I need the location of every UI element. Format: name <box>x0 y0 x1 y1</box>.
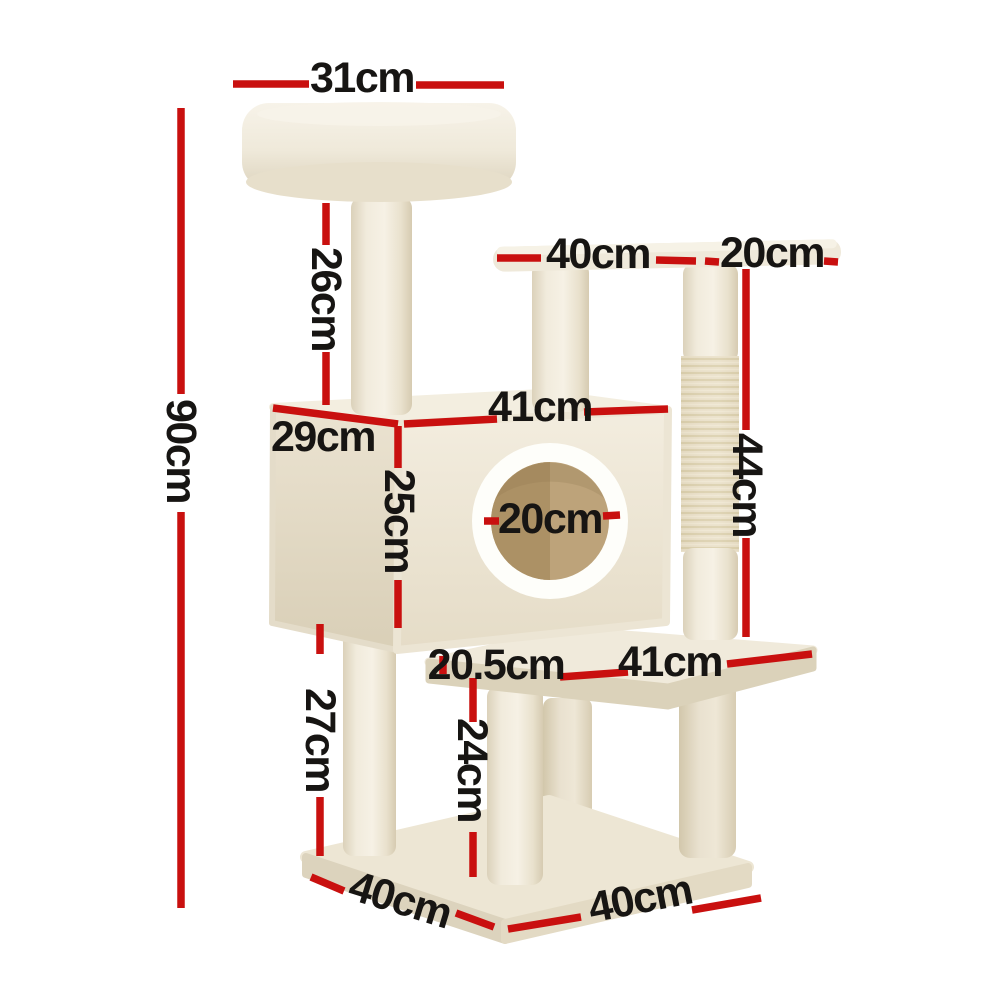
left-post <box>343 627 396 856</box>
dim-label-hole-diameter: 20cm <box>498 495 602 543</box>
dim-condo-width-line-left <box>404 419 497 424</box>
dim-label-lower-platform-inset: 20.5cm <box>428 641 565 689</box>
product-dimension-diagram: 31cm 90cm 26cm 40cm 20cm 41cm 29cm 25cm … <box>0 0 1000 1000</box>
dim-mid-platform-dash-b <box>705 261 719 262</box>
dim-label-lower-platform-length: 41cm <box>618 638 722 686</box>
dim-label-sisal-post-height: 44cm <box>723 433 771 537</box>
dim-label-front-post-height: 24cm <box>448 718 496 822</box>
dim-label-mid-platform-length: 40cm <box>546 230 650 278</box>
sisal-post-bottom-plush <box>683 548 738 640</box>
dim-label-condo-height: 25cm <box>375 469 423 573</box>
sisal-post-top-plush <box>683 264 738 362</box>
dim-label-mid-platform-overhang: 20cm <box>720 229 824 277</box>
dim-label-top-bed-width: 31cm <box>310 54 414 102</box>
cat-tree-diagram-canvas: 31cm 90cm 26cm 40cm 20cm 41cm 29cm 25cm … <box>0 0 1000 1000</box>
dim-condo-width-line-right <box>584 409 668 412</box>
dim-label-condo-width: 41cm <box>488 383 592 431</box>
dim-mid-platform-dash-a <box>656 260 696 261</box>
dim-mid-overhang-line-right <box>824 261 838 262</box>
dim-base-width-line-right <box>692 898 761 910</box>
top-bed-bottom-curve <box>246 162 512 202</box>
top-bed-cushion <box>257 102 501 126</box>
dim-label-total-height: 90cm <box>157 399 205 503</box>
top-post <box>351 197 412 415</box>
dim-label-left-post-height: 27cm <box>296 688 344 792</box>
top-bed <box>242 102 516 202</box>
dim-label-top-post-height: 26cm <box>302 247 350 351</box>
dim-label-condo-depth: 29cm <box>271 413 375 461</box>
dim-hole-line-right <box>603 515 620 516</box>
